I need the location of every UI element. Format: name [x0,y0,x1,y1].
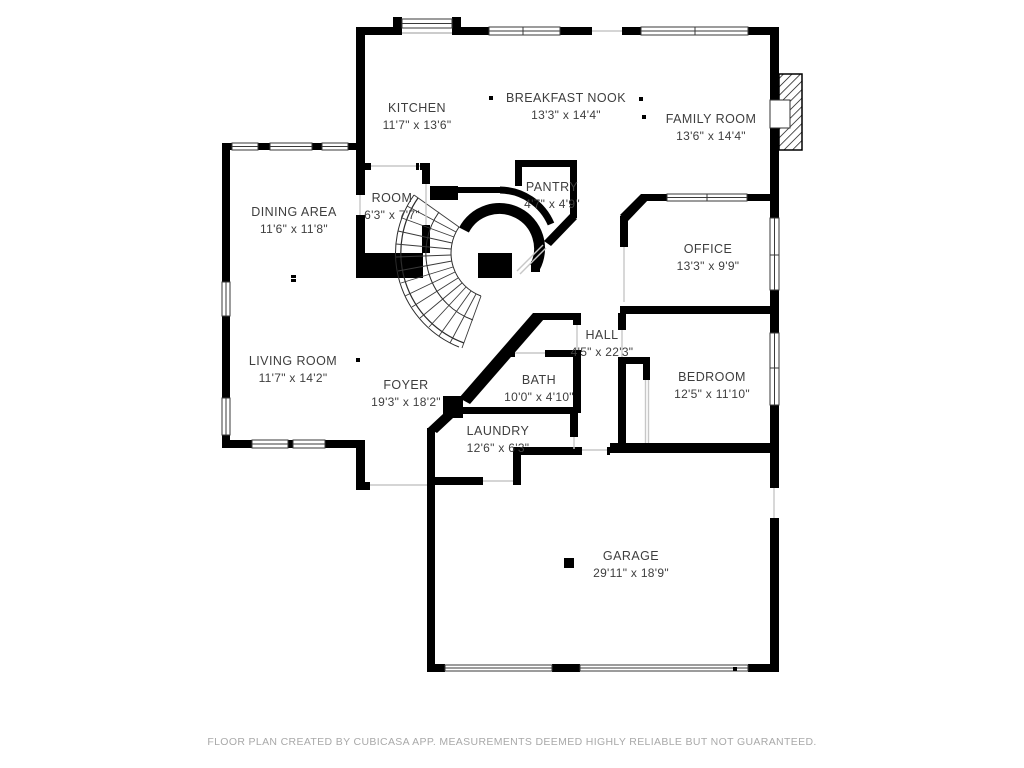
room-name: FAMILY ROOM [666,113,757,127]
garage-post [564,558,574,568]
room-label-family-room: FAMILY ROOM 13'6" x 14'4" [666,113,757,143]
room-label-living-room: LIVING ROOM 11'7" x 14'2" [249,355,337,385]
room-dimensions: 10'0" x 4'10" [504,391,574,404]
room-dimensions: 19'3" x 18'2" [371,396,441,409]
room-name: KITCHEN [383,102,452,116]
firebox [770,100,790,128]
room-label-pantry: PANTRY 4'7" x 4'9" [524,181,580,211]
room-dimensions: 6'3" x 7'7" [364,209,420,222]
room-label-office: OFFICE 13'3" x 9'9" [677,243,740,273]
room-name: LIVING ROOM [249,355,337,369]
room-name: OFFICE [677,243,740,257]
room-dimensions: 29'11" x 18'9" [593,567,669,580]
footer-disclaimer: FLOOR PLAN CREATED BY CUBICASA APP. MEAS… [207,736,816,748]
dining-windows [232,143,348,150]
room-label-breakfast-nook: BREAKFAST NOOK 13'3" x 14'4" [506,92,626,122]
room-label-dining-area: DINING AREA 11'6" x 11'8" [251,206,337,236]
room-name: GARAGE [593,550,669,564]
room-dimensions: 12'6" x 6'3" [467,442,530,455]
room-dimensions: 4'5" x 22'3" [571,346,634,359]
floorplan-canvas: KITCHEN 11'7" x 13'6" BREAKFAST NOOK 13'… [0,0,1024,768]
fireplace [770,74,802,150]
office-top-window [667,194,747,201]
kitchen-window [489,27,560,35]
room-label-laundry: LAUNDRY 12'6" x 6'3" [467,425,530,455]
room-name: BEDROOM [674,371,750,385]
room-dimensions: 13'3" x 9'9" [677,260,740,273]
office-right-window [770,218,779,290]
room-label-kitchen: KITCHEN 11'7" x 13'6" [383,102,452,132]
room-name: PANTRY [524,181,580,195]
room-dimensions: 12'5" x 11'10" [674,388,750,401]
room-label-garage: GARAGE 29'11" x 18'9" [593,550,669,580]
room-dimensions: 11'7" x 14'2" [249,372,337,385]
room-name: LAUNDRY [467,425,530,439]
room-label-room: ROOM 6'3" x 7'7" [364,192,420,222]
room-name: BATH [504,374,574,388]
room-dimensions: 13'3" x 14'4" [506,109,626,122]
room-label-hall: HALL 4'5" x 22'3" [571,329,634,359]
room-dimensions: 11'7" x 13'6" [383,119,452,132]
room-name: HALL [571,329,634,343]
room-name: BREAKFAST NOOK [506,92,626,106]
room-name: DINING AREA [251,206,337,220]
garage-doors [445,665,748,671]
room-dimensions: 4'7" x 4'9" [524,198,580,211]
room-dimensions: 11'6" x 11'8" [251,223,337,236]
breakfast-nook-window [641,27,748,35]
room-dimensions: 13'6" x 14'4" [666,130,757,143]
living-room-windows [252,440,325,448]
room-label-bath: BATH 10'0" x 4'10" [504,374,574,404]
room-name: FOYER [371,379,441,393]
room-label-foyer: FOYER 19'3" x 18'2" [371,379,441,409]
bay-window [402,19,452,33]
room-name: ROOM [364,192,420,206]
room-label-bedroom: BEDROOM 12'5" x 11'10" [674,371,750,401]
bedroom-right-window [770,333,779,405]
